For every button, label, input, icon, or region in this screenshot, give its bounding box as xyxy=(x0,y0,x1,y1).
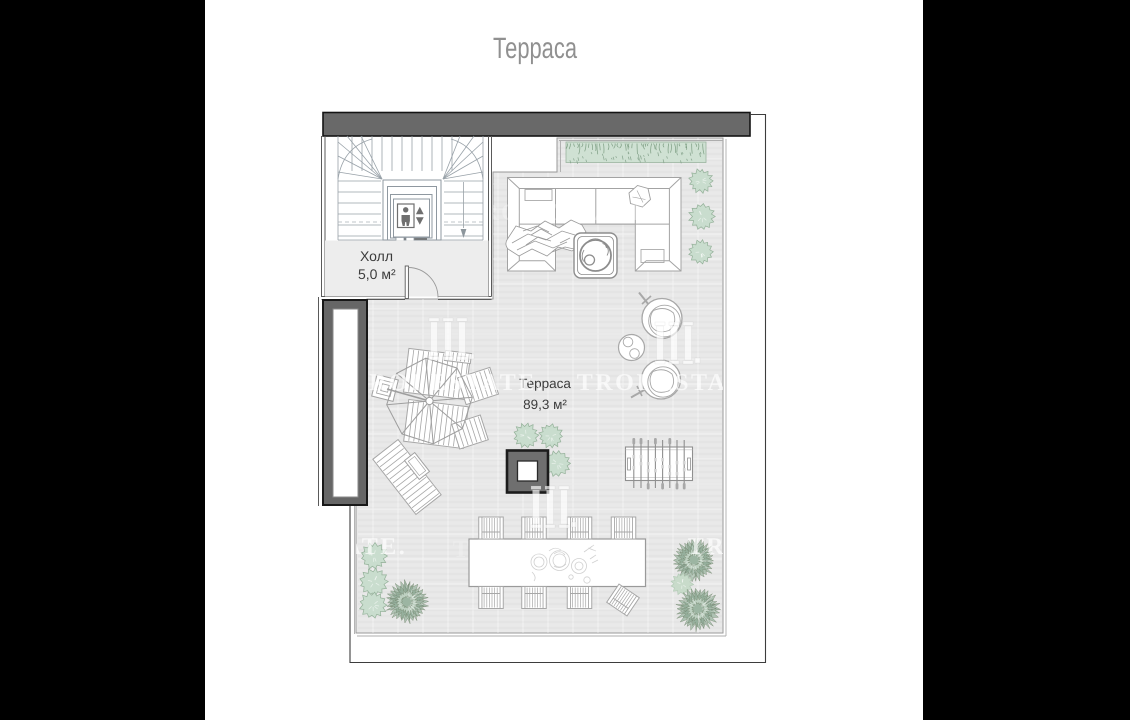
svg-text:Терраса: Терраса xyxy=(493,32,577,65)
svg-text:TROI ESTATE.: TROI ESTATE. xyxy=(351,370,546,396)
svg-text:TROI ESTATE.: TROI ESTATE. xyxy=(453,537,648,563)
svg-text:5,0 м²: 5,0 м² xyxy=(358,266,396,282)
svg-text:Холл: Холл xyxy=(360,248,393,264)
svg-text:89,3 м²: 89,3 м² xyxy=(523,397,567,412)
